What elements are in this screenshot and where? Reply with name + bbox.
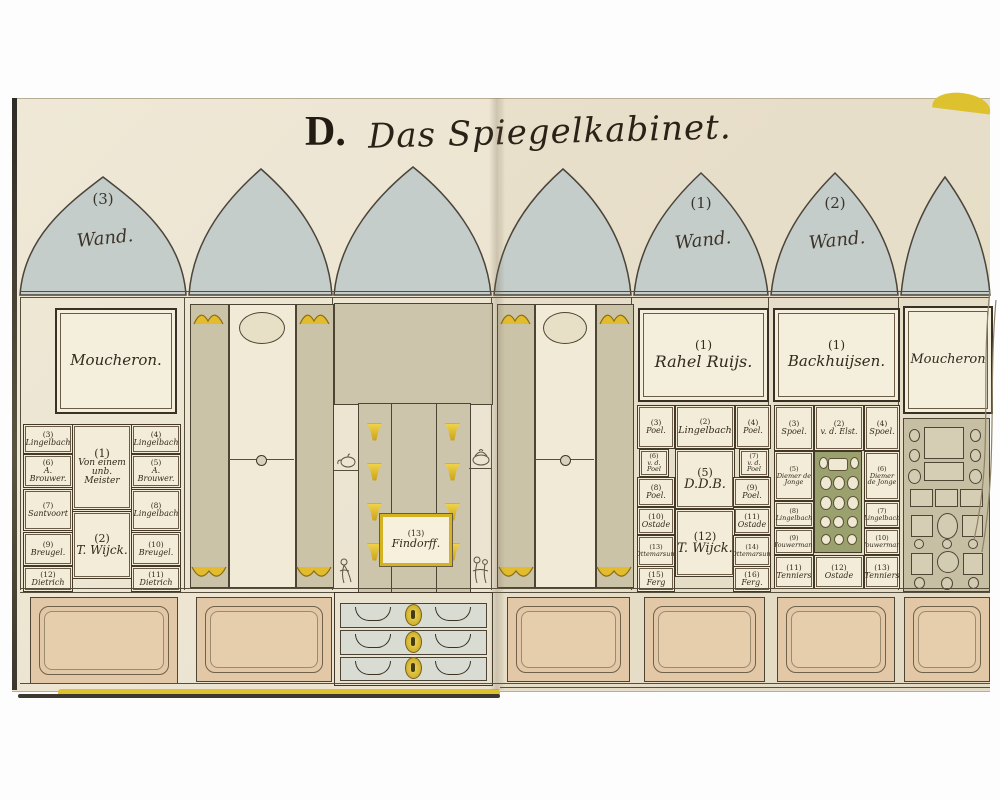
painting-rahel-ruijs: (1) Rahel Ruijs. xyxy=(638,308,769,402)
painting-label: Ferg. xyxy=(741,579,762,587)
painting-label: Lingelbach xyxy=(678,426,731,436)
painting-label: Wouwermann xyxy=(774,542,814,549)
painting-label: Poel. xyxy=(646,427,666,435)
painting-label: Diemer de Jonge xyxy=(866,473,898,486)
cornice-line-upper xyxy=(20,291,990,292)
ornament-dot xyxy=(847,476,859,490)
painting-label: Moucheron. xyxy=(70,352,162,369)
curio-niche xyxy=(924,462,964,481)
mirror-panel xyxy=(229,304,296,588)
keyhole-escutcheon xyxy=(405,657,422,679)
painting-label: Breugel. xyxy=(31,549,66,557)
painting-findorff: (13) Findorff. xyxy=(380,514,452,566)
ornament-panel xyxy=(814,451,862,553)
mirror-panel xyxy=(535,304,596,588)
painting-ostade: (10) Ostade xyxy=(637,507,675,535)
cabinet-top-panel xyxy=(334,303,493,405)
ornament-dot xyxy=(850,457,859,469)
painting-diemer-de-jonge: (5) Diemer de Jonge xyxy=(774,451,814,501)
painting-ottemarsum: (14) Ottemarsum xyxy=(733,535,771,567)
painting-label: Ottemarsum xyxy=(733,551,771,558)
painting-wouwermann: (9) Wouwermann xyxy=(774,528,814,555)
painting-wouwermann: (10) Wouwermann xyxy=(864,528,900,555)
painting-label: Lingelbach xyxy=(26,439,71,447)
mirror-knob xyxy=(256,455,267,466)
wainscot-panel xyxy=(196,597,332,682)
painting-santvoort: (7) Santvoort xyxy=(23,489,73,531)
curio-knob xyxy=(909,429,920,442)
side-shelf xyxy=(469,468,491,469)
painting-unknown-master: (1) Von einem unb. Meister xyxy=(72,424,132,510)
painting-label: Ottemarsum xyxy=(637,551,675,558)
title-letter: D. xyxy=(305,108,346,156)
painting-label: Ostade xyxy=(642,521,671,529)
painting-label: Diemer de Jonge xyxy=(776,473,812,486)
cornice-line-lower xyxy=(20,297,990,298)
wall-edge-left xyxy=(20,297,21,590)
wainscot-panel xyxy=(507,597,630,682)
console-bracket-icon xyxy=(367,424,382,441)
painting-tenniers: (11) Tenniers xyxy=(774,555,814,589)
painting-label: Findorff. xyxy=(392,538,440,550)
painting-vd-poel: (6) v. d. Poel xyxy=(639,449,669,477)
keyhole-escutcheon xyxy=(405,604,422,626)
ornament-dot xyxy=(834,534,844,545)
painting-t-wijck: (12) T. Wijck. xyxy=(675,509,735,577)
painting-label: Dietrich xyxy=(140,579,173,587)
painting-label: Dietrich xyxy=(32,579,65,587)
figure-sketch-icon xyxy=(336,556,358,586)
painting-number: (1) xyxy=(828,339,845,353)
painting-label: Ferg xyxy=(647,579,666,587)
painting-poel: (4) Poel. xyxy=(735,405,771,449)
baseboard-line-lower xyxy=(500,687,990,688)
painting-breugel: (9) Breugel. xyxy=(23,532,73,566)
ornament-dot xyxy=(833,496,845,510)
painting-label: Backhuijsen. xyxy=(788,353,885,370)
teapot-sketch-icon xyxy=(336,450,358,469)
console-bracket-icon xyxy=(367,464,382,481)
painting-label: v. d. Elst. xyxy=(820,428,857,436)
painting-breugel: (10) Breugel. xyxy=(131,532,181,566)
gold-capital-ornament xyxy=(597,306,632,326)
painting-label: Lingelbach xyxy=(776,515,813,522)
side-shelf xyxy=(334,470,358,471)
arch-number-1: (1) xyxy=(666,194,736,212)
cover-edge-dark-bottom xyxy=(18,694,500,698)
ornament-dot xyxy=(833,516,844,528)
pilaster-column xyxy=(190,304,229,588)
painting-tenniers: (13) Tenniers xyxy=(864,555,900,589)
painting-lingelbach: (8) Lingelbach xyxy=(131,489,181,531)
wainscot-panel xyxy=(904,597,990,682)
panel-inner-field xyxy=(210,611,318,668)
chair-rail-upper xyxy=(20,588,990,589)
painting-poel: (8) Poel. xyxy=(637,477,675,507)
pilaster-column xyxy=(296,304,334,588)
painting-number: (1) xyxy=(695,339,712,353)
ornament-rect xyxy=(828,458,848,471)
manuscript-photo: D. Das Spiegelkabinet. (3) Wand. (1) Wan… xyxy=(0,0,1000,800)
painting-backhuijsen: (1) Backhuijsen. xyxy=(773,308,900,402)
curio-knob xyxy=(914,539,924,549)
painting-label: T. Wijck. xyxy=(76,544,127,556)
painting-t-wijck-left: (2) T. Wijck. xyxy=(72,511,132,579)
ornament-dot xyxy=(847,496,859,510)
chest-of-drawers xyxy=(334,592,493,686)
keyhole-escutcheon xyxy=(405,631,422,653)
ornament-dot xyxy=(820,516,831,528)
painting-ostade: (12) Ostade xyxy=(814,555,864,589)
painting-label: v. d. Poel xyxy=(741,460,767,473)
painting-label: Santvoort xyxy=(28,510,68,518)
ornament-dot xyxy=(820,496,832,510)
gold-capital-ornament xyxy=(297,306,332,326)
chair-rail-lower xyxy=(20,592,990,593)
panel-inner-field xyxy=(791,611,881,668)
painting-diemer-de-jonge: (6) Diemer de Jonge xyxy=(864,451,900,501)
painting-label: Spoel. xyxy=(869,428,894,436)
painting-ddb: (5) D.D.B. xyxy=(675,449,735,509)
curio-niche xyxy=(910,489,933,507)
console-bracket-icon xyxy=(445,464,460,481)
painting-ottemarsum: (13) Ottemarsum xyxy=(637,535,675,567)
book-fold-shadow xyxy=(489,98,505,690)
ornament-dot xyxy=(833,476,845,490)
ornament-dot xyxy=(847,534,857,545)
painting-lingelbach: (4) Lingelbach xyxy=(131,424,181,454)
curio-knob xyxy=(908,469,921,484)
curio-niche xyxy=(911,515,933,537)
painting-label: Wouwermann xyxy=(864,542,900,549)
painting-label: A. Brouwer. xyxy=(25,467,71,483)
painting-label: Ostade xyxy=(825,572,854,580)
painting-label: Rahel Ruijs. xyxy=(655,353,753,371)
console-bracket-icon xyxy=(445,424,460,441)
painting-label: Lingelbach xyxy=(134,510,179,518)
ornament-dot xyxy=(819,457,828,469)
painting-ostade: (11) Ostade xyxy=(733,507,771,535)
painting-moucheron-left: Moucheron. xyxy=(55,308,177,414)
curio-oval xyxy=(937,513,958,539)
painting-lingelbach: (7) Lingelbach xyxy=(864,501,900,528)
painting-label: Von einem unb. Meister xyxy=(74,459,130,487)
panel-inner-field xyxy=(44,611,164,670)
painting-label: Poel. xyxy=(743,427,763,435)
curio-niche xyxy=(924,427,964,459)
wainscot-panel xyxy=(644,597,765,682)
pilaster-column xyxy=(596,304,634,588)
painting-vd-poel: (7) v. d. Poel xyxy=(739,449,769,477)
painting-brouwer: (6) A. Brouwer. xyxy=(23,454,73,488)
painting-lingelbach: (3) Lingelbach xyxy=(23,424,73,454)
gold-base-ornament xyxy=(188,563,230,585)
curio-knob xyxy=(942,539,952,549)
painting-spoel: (3) Spoel. xyxy=(774,405,814,451)
painting-label: A. Brouwer. xyxy=(133,467,179,483)
gold-capital-ornament xyxy=(191,306,226,326)
painting-label: Lingelbach xyxy=(134,439,179,447)
painting-lingelbach: (8) Lingelbach xyxy=(774,501,814,528)
painting-label: T. Wijck. xyxy=(677,542,733,555)
painting-lingelbach: (2) Lingelbach xyxy=(675,405,735,449)
painting-spoel: (4) Spoel. xyxy=(864,405,900,451)
panel-inner-field xyxy=(658,611,751,668)
gold-base-ornament xyxy=(593,563,635,585)
mirror-oval xyxy=(239,312,285,344)
wainscot-panel xyxy=(30,597,178,684)
painting-label: D.D.B. xyxy=(684,478,726,491)
ornament-dot xyxy=(820,476,832,490)
panel-inner-field xyxy=(521,611,616,668)
arch-number-3: (3) xyxy=(68,190,138,208)
curio-niche xyxy=(911,553,933,575)
painting-label: Ostade xyxy=(738,521,767,529)
curio-niche xyxy=(935,489,958,507)
ornament-dot xyxy=(821,534,831,545)
curio-oval xyxy=(937,551,959,573)
baseboard-line xyxy=(20,683,990,684)
painting-label: Poel. xyxy=(742,492,762,500)
curio-knob xyxy=(909,449,920,462)
painting-label: Spoel. xyxy=(781,428,806,436)
painting-label: Tenniers xyxy=(777,572,812,580)
painting-label: Tenniers xyxy=(865,572,900,580)
mirror-oval xyxy=(543,312,587,344)
panel-inner-field xyxy=(918,611,976,668)
painting-label: Lingelbach xyxy=(864,515,900,522)
arch-number-2: (2) xyxy=(800,194,870,212)
ornament-dot xyxy=(847,516,858,528)
painting-brouwer: (5) A. Brouwer. xyxy=(131,454,181,488)
painting-poel: (3) Poel. xyxy=(637,405,675,449)
painting-vd-elst: (2) v. d. Elst. xyxy=(814,405,864,451)
painting-label: Breugel. xyxy=(139,549,174,557)
painting-label: v. d. Poel xyxy=(641,460,667,473)
painting-poel: (9) Poel. xyxy=(733,477,771,507)
page-edge-curl xyxy=(960,290,1000,570)
wainscot-panel xyxy=(777,597,895,682)
gold-base-ornament xyxy=(293,563,335,585)
mirror-knob xyxy=(560,455,571,466)
wall-separator-1 xyxy=(184,297,185,590)
painting-label: Poel. xyxy=(646,492,666,500)
